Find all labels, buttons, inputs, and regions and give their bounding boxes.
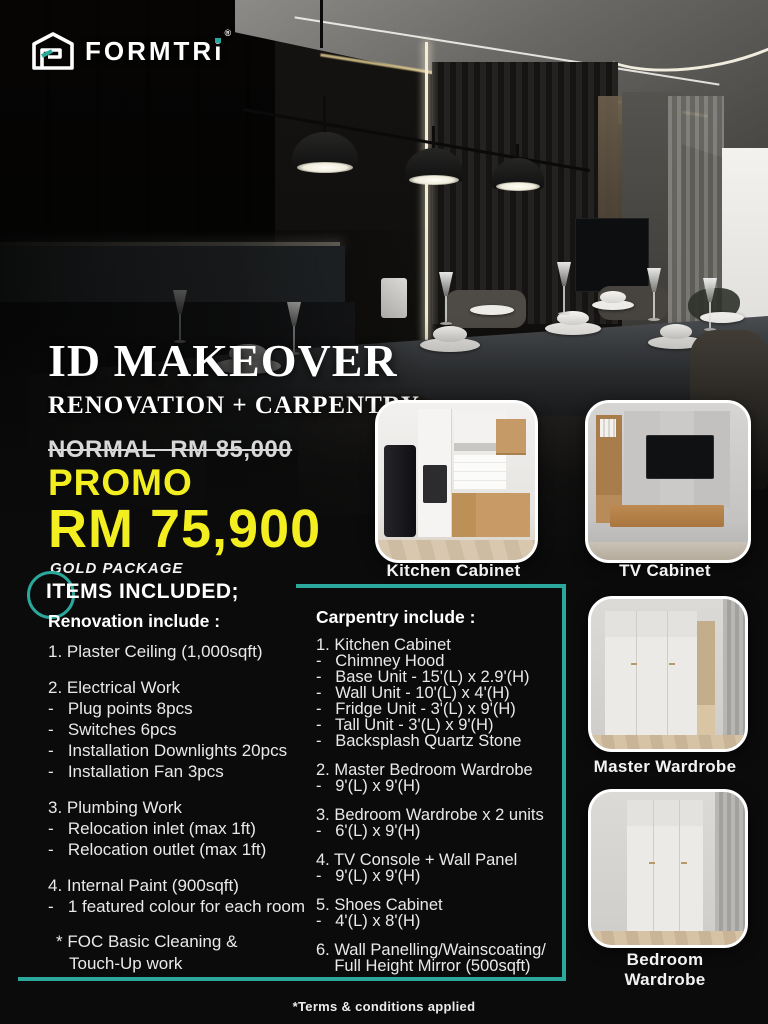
footnote-line1: * FOC Basic Cleaning & — [56, 931, 237, 953]
renovation-heading: Renovation include : — [48, 611, 220, 632]
list-line: - Tall Unit - 3'(L) x 9'(H) — [316, 717, 546, 733]
page-subtitle: RENOVATION + CARPENTRY — [48, 392, 420, 420]
list-line: Full Height Mirror (500sqft) — [316, 958, 546, 974]
list-line: 5. Shoes Cabinet — [316, 897, 546, 913]
list-line: - Base Unit - 15'(L) x 2.9'(H) — [316, 669, 546, 685]
list-line: 6. Wall Panelling/Wainscoating/ — [316, 942, 546, 958]
brand-i-letter: i — [214, 36, 224, 66]
list-line: 1. Plaster Ceiling (1,000sqft) — [48, 641, 305, 662]
list-line: 2. Electrical Work — [48, 677, 305, 698]
list-line: 2. Master Bedroom Wardrobe — [316, 762, 546, 778]
brand-name: FORMTRi® — [85, 36, 234, 67]
master-wardrobe-photo — [591, 599, 745, 749]
master-wardrobe-card — [588, 596, 748, 752]
list-line: - Relocation inlet (max 1ft) — [48, 818, 305, 839]
list-line: 3. Bedroom Wardrobe x 2 units — [316, 807, 546, 823]
page-title: ID MAKEOVER — [48, 334, 398, 387]
master-wardrobe-label: Master Wardrobe — [588, 757, 742, 777]
kitchen-cabinet-photo — [378, 403, 535, 560]
list-line: 4. TV Console + Wall Panel — [316, 852, 546, 868]
list-line: - 6'(L) x 9'(H) — [316, 823, 546, 839]
list-line: - Plug points 8pcs — [48, 698, 305, 719]
list-line: - 9'(L) x 9'(H) — [316, 868, 546, 884]
list-line: - Installation Fan 3pcs — [48, 761, 305, 782]
kitchen-cabinet-card — [375, 400, 538, 563]
bedroom-wardrobe-photo — [591, 792, 745, 945]
bedroom-wardrobe-label: Bedroom Wardrobe — [588, 950, 742, 990]
bedroom-wardrobe-card — [588, 789, 748, 948]
brand-logo: FORMTRi® — [30, 30, 234, 72]
list-line — [48, 860, 305, 875]
terms-note: *Terms & conditions applied — [0, 999, 768, 1014]
promo-price: RM 75,900 — [48, 498, 321, 560]
items-included-heading: ITEMS INCLUDED; — [46, 580, 239, 604]
list-line — [48, 662, 305, 677]
registered-mark: ® — [224, 28, 234, 38]
flyer-page: FORMTRi® ID MAKEOVER RENOVATION + CARPEN… — [0, 0, 768, 1024]
list-line: 4. Internal Paint (900sqft) — [48, 875, 305, 896]
normal-price-strikethrough: NORMAL RM 85,000 — [48, 436, 292, 464]
package-name: GOLD PACKAGE — [50, 560, 183, 577]
carpentry-heading: Carpentry include : — [316, 607, 475, 628]
list-line: - Installation Downlights 20pcs — [48, 740, 305, 761]
teal-divider-line — [18, 977, 562, 981]
list-line — [48, 782, 305, 797]
renovation-list: 1. Plaster Ceiling (1,000sqft)2. Electri… — [48, 641, 305, 917]
kitchen-cabinet-label: Kitchen Cabinet — [375, 561, 532, 581]
list-line: - Chimney Hood — [316, 653, 546, 669]
list-line: - 1 featured colour for each room — [48, 896, 305, 917]
list-line: - Wall Unit - 10'(L) x 4'(H) — [316, 685, 546, 701]
list-line: - Switches 6pcs — [48, 719, 305, 740]
tv-cabinet-photo — [588, 403, 748, 560]
list-line: 1. Kitchen Cabinet — [316, 637, 546, 653]
tv-cabinet-label: TV Cabinet — [585, 561, 745, 581]
foc-footnote: * FOC Basic Cleaning & Touch-Up work — [56, 931, 237, 975]
footnote-line2: Touch-Up work — [69, 953, 237, 975]
list-line: 3. Plumbing Work — [48, 797, 305, 818]
list-line: - Backsplash Quartz Stone — [316, 733, 546, 749]
list-line: - 4'(L) x 8'(H) — [316, 913, 546, 929]
list-line: - 9'(L) x 9'(H) — [316, 778, 546, 794]
list-line: - Fridge Unit - 3'(L) x 9'(H) — [316, 701, 546, 717]
list-line: - Relocation outlet (max 1ft) — [48, 839, 305, 860]
tv-cabinet-card — [585, 400, 751, 563]
formtri-house-icon — [30, 30, 76, 72]
carpentry-list: 1. Kitchen Cabinet- Chimney Hood- Base U… — [316, 637, 546, 974]
